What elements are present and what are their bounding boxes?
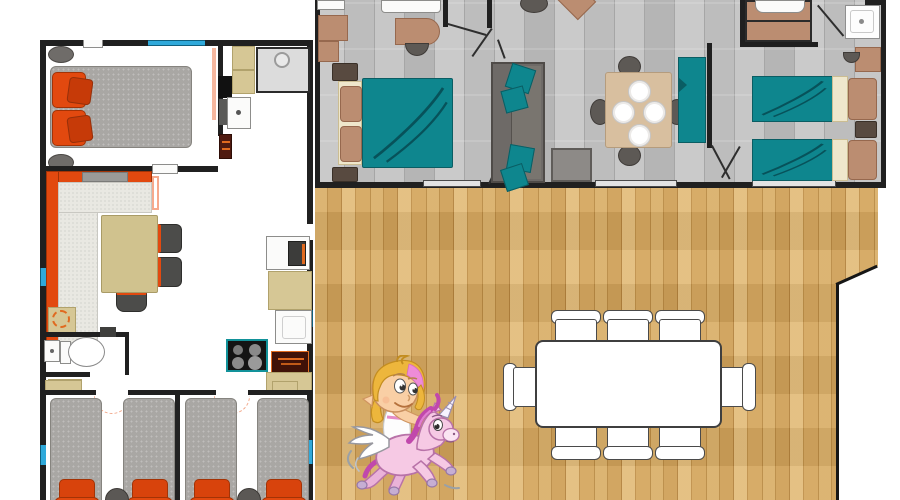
wc-wall — [125, 332, 129, 375]
oven — [271, 351, 309, 373]
dining-chair — [618, 145, 641, 166]
wc-sink — [44, 340, 60, 362]
bedroom2-wall — [707, 43, 712, 148]
kitchen-counter — [268, 271, 312, 310]
bay-window — [752, 180, 836, 187]
deck-chair-back — [603, 446, 653, 460]
nightstand — [332, 63, 358, 81]
bedroom-wall — [178, 166, 218, 172]
bedside-lamp — [48, 46, 74, 63]
deck-chair-back — [655, 446, 705, 460]
entry-wall-right — [487, 0, 492, 28]
utility-line — [222, 141, 230, 143]
bath-wall-bottom — [740, 42, 818, 47]
corner-bench — [318, 15, 348, 41]
single-bed — [50, 398, 102, 500]
nightstand — [332, 167, 358, 182]
counter-notch — [678, 77, 687, 93]
shower — [845, 5, 880, 39]
floorplan-canvas — [0, 0, 900, 500]
shower-cabin — [256, 47, 310, 93]
wardrobe — [855, 47, 881, 72]
door-swing-line — [447, 23, 486, 36]
bedroom-divider — [175, 395, 180, 500]
duvet-swoosh — [753, 77, 832, 120]
bed-foot — [832, 139, 848, 181]
hob — [226, 339, 268, 372]
corner-bench — [318, 41, 339, 62]
side-chair — [48, 307, 76, 333]
mascot-illustration — [343, 355, 465, 500]
deck-edge — [836, 284, 839, 500]
oven-label-line — [281, 363, 301, 365]
window — [148, 40, 205, 46]
plate — [628, 80, 651, 103]
kitchen-sink-counter — [275, 310, 312, 344]
door-swing-line — [711, 145, 731, 179]
bed-pillow — [848, 140, 877, 180]
washbasin — [227, 97, 251, 129]
deck-dining-table — [535, 340, 722, 428]
single-bed-teal — [752, 139, 833, 181]
plate — [612, 101, 635, 124]
hall-wall — [248, 390, 313, 395]
door-marker — [83, 40, 103, 48]
sofa-tray — [82, 172, 128, 182]
bay-window — [423, 180, 481, 187]
dining-chair — [158, 224, 182, 253]
bed-pillow — [848, 78, 877, 120]
faucet-dot — [50, 349, 54, 353]
left-floorplan — [40, 40, 313, 500]
burner — [233, 345, 243, 355]
burner — [248, 356, 262, 370]
single-bed — [123, 398, 175, 500]
oven-label-line — [278, 358, 304, 360]
vanity-drawer-line — [747, 20, 810, 22]
door-swing-line — [721, 146, 741, 178]
desk-chair — [405, 43, 429, 56]
door-swing-line — [817, 5, 844, 37]
stool — [520, 0, 548, 13]
window — [40, 445, 46, 465]
microwave — [288, 241, 306, 266]
vanity-basin — [755, 0, 805, 13]
single-bed — [257, 398, 309, 500]
mascot-unicorn-fairy — [343, 355, 465, 500]
wardrobe-shelf-line — [233, 69, 254, 71]
faucet-dot — [236, 110, 241, 115]
chair-ring — [52, 310, 70, 328]
toilet-bowl — [68, 337, 105, 367]
kitchen-sink — [381, 0, 441, 13]
wc-wall — [40, 372, 90, 377]
single-bed-teal — [752, 76, 833, 122]
plate — [643, 101, 666, 124]
deck-chair-back — [742, 363, 756, 411]
shower-drain — [859, 19, 864, 24]
duvet-swoosh — [753, 140, 832, 179]
double-bed-teal — [362, 78, 453, 168]
door-marker — [152, 164, 178, 174]
bed-pillow-orange-inner — [66, 76, 93, 105]
door-swing-line — [497, 39, 505, 58]
corner-unit — [554, 0, 596, 20]
bed-pillow — [340, 126, 362, 162]
bay-window — [595, 180, 677, 187]
hall-wall — [40, 390, 96, 395]
bed-pillow-orange-inner — [66, 114, 93, 143]
utility-line — [222, 148, 230, 150]
basin-panel — [219, 99, 227, 125]
kitchen-counter-teal — [678, 57, 706, 143]
kitchen-counter-top — [317, 0, 345, 10]
dining-chair — [158, 257, 182, 287]
desk — [395, 18, 440, 45]
utility-unit — [219, 134, 232, 159]
sofa-cushions — [58, 182, 152, 213]
bed-foot — [832, 76, 848, 122]
wall-block — [218, 76, 232, 98]
wc-wall-block — [100, 327, 116, 337]
upper-floorplan — [315, 0, 886, 188]
hall-wall — [128, 390, 216, 395]
shower-head-ring — [274, 52, 290, 68]
door-strip — [212, 48, 216, 120]
deck-chair-back — [551, 446, 601, 460]
dining-chair — [116, 292, 147, 312]
door-marker-salmon — [152, 176, 159, 210]
nightstand — [855, 121, 877, 138]
sink-outline — [282, 316, 306, 339]
burner — [249, 344, 261, 356]
duvet-swoosh — [363, 79, 454, 169]
microwave-handle — [302, 244, 305, 264]
upper-wall-right — [881, 0, 886, 188]
bed-pillow — [340, 86, 362, 122]
dining-table — [101, 215, 158, 293]
coffee-table — [551, 148, 592, 182]
single-bed — [185, 398, 237, 500]
plate — [628, 124, 651, 147]
burner — [232, 357, 244, 369]
